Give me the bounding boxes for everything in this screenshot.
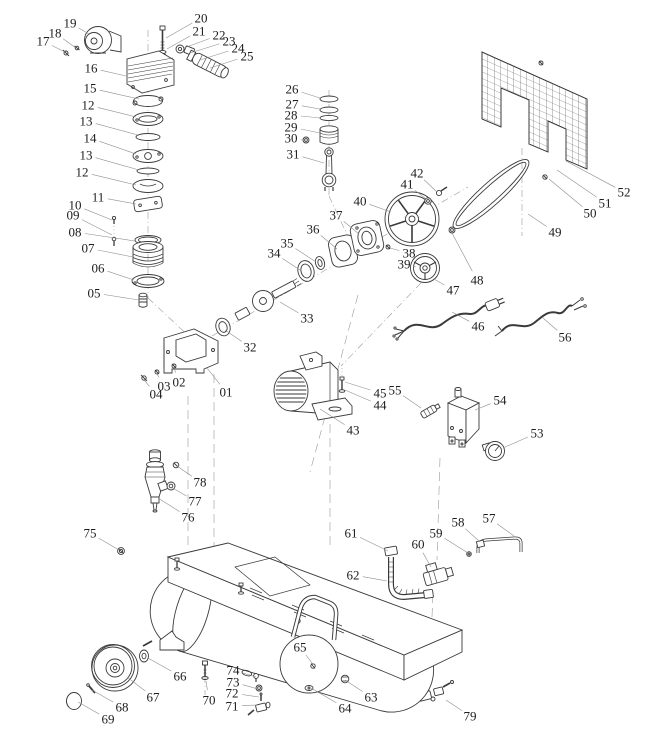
regulator-port-77 — [158, 481, 175, 491]
leader-line-73 — [243, 685, 258, 689]
connecting-rod-31 — [322, 148, 336, 191]
part-label-53: 53 — [531, 426, 544, 441]
part-label-02: 02 — [173, 375, 186, 390]
drain-washer-73 — [256, 685, 262, 691]
crankshaft-33 — [235, 279, 301, 321]
part-label-77: 77 — [189, 494, 203, 509]
leader-line-03 — [157, 374, 159, 377]
part-label-67: 67 — [147, 690, 161, 705]
leader-line-09 — [82, 220, 112, 235]
cylinder-head-16 — [127, 51, 174, 93]
filter-screws-17-18 — [63, 46, 80, 56]
mount-nut-75 — [118, 548, 125, 555]
leader-line-13 — [96, 158, 139, 170]
leader-line-01 — [207, 368, 220, 384]
valve-plate-14 — [133, 150, 163, 163]
part-label-35: 35 — [281, 236, 294, 251]
leader-line-59 — [445, 538, 469, 553]
part-label-07: 07 — [82, 241, 96, 256]
hose-nut-61 — [384, 546, 397, 556]
leader-line-14 — [99, 141, 136, 154]
leader-line-17 — [52, 46, 65, 53]
tank-end-cap-65 — [280, 635, 338, 693]
leader-line-26 — [302, 92, 321, 98]
valve-screws-09-10 — [112, 216, 116, 246]
cylinder-gasket-06 — [132, 275, 164, 288]
part-label-79: 79 — [464, 709, 477, 724]
part-label-04: 04 — [150, 387, 164, 402]
diagram-canvas: 0102030405060708091011121314131215161718… — [0, 0, 649, 755]
part-label-74: 74 — [227, 663, 241, 678]
part-label-62: 62 — [347, 568, 360, 583]
leader-line-27 — [302, 106, 320, 109]
valve-plate-12-lower — [133, 180, 163, 193]
drain-pin-72 — [260, 693, 262, 701]
leader-line-57 — [497, 524, 514, 536]
leader-line-75 — [99, 538, 119, 550]
leader-line-72 — [242, 695, 259, 698]
part-label-12: 12 — [76, 165, 89, 180]
leader-line-07 — [98, 250, 133, 257]
part-label-36: 36 — [307, 222, 321, 237]
part-label-16: 16 — [85, 61, 99, 76]
plug-05 — [139, 293, 147, 307]
part-label-33: 33 — [301, 311, 314, 326]
part-label-13: 13 — [80, 114, 93, 129]
part-label-40: 40 — [354, 194, 367, 209]
part-label-45: 45 — [374, 386, 387, 401]
leader-line-33 — [280, 302, 298, 313]
plug-fitting-55 — [420, 403, 441, 419]
part-label-37: 37 — [330, 208, 344, 223]
part-label-57: 57 — [483, 511, 497, 526]
leader-line-29 — [301, 129, 320, 133]
flywheel-bolt-42 — [436, 187, 447, 196]
leader-line-15 — [100, 90, 139, 99]
leader-line-12 — [98, 107, 136, 117]
leader-line-67 — [127, 677, 145, 691]
exploded-parts-diagram: 0102030405060708091011121314131215161718… — [0, 0, 649, 755]
gasket-13-lower — [137, 168, 159, 174]
part-label-52: 52 — [618, 185, 631, 200]
leader-line-16 — [101, 70, 126, 76]
part-label-31: 31 — [287, 147, 300, 162]
part-label-01: 01 — [220, 385, 233, 400]
part-label-60: 60 — [412, 537, 425, 552]
part-label-76: 76 — [182, 510, 196, 525]
motor-43 — [272, 352, 352, 420]
leader-line-34 — [282, 259, 300, 271]
part-label-12: 12 — [82, 98, 95, 113]
part-label-18: 18 — [49, 26, 62, 41]
leader-line-06 — [108, 271, 135, 280]
leader-line-42 — [424, 180, 437, 192]
part-label-61: 61 — [345, 526, 358, 541]
part-label-64: 64 — [339, 701, 353, 716]
leader-line-77 — [171, 487, 186, 496]
part-label-50: 50 — [584, 206, 597, 221]
power-cable-46 — [393, 296, 506, 340]
leader-line-45 — [345, 382, 371, 390]
leader-line-10 — [84, 209, 112, 220]
part-label-66: 66 — [174, 669, 188, 684]
power-cable-56 — [495, 298, 586, 336]
leader-line-55 — [403, 396, 421, 408]
part-label-25: 25 — [241, 49, 254, 64]
leader-line-32 — [225, 330, 242, 341]
part-label-30: 30 — [285, 131, 298, 146]
pipe-nut-58 — [476, 540, 484, 548]
part-label-46: 46 — [472, 319, 486, 334]
axle-washer-66 — [140, 650, 149, 662]
part-label-08: 08 — [69, 225, 82, 240]
part-label-19: 19 — [64, 16, 77, 31]
leader-line-58 — [465, 529, 480, 542]
leader-line-68 — [92, 690, 113, 702]
leader-line-70 — [206, 681, 207, 690]
muffler-24-25 — [186, 49, 230, 79]
leader-line-62 — [363, 577, 387, 581]
leader-line-11 — [108, 199, 136, 204]
part-label-32: 32 — [244, 340, 257, 355]
leader-line-22 — [184, 39, 210, 49]
pressure-switch-54 — [448, 388, 479, 448]
leader-line-76 — [158, 498, 180, 512]
piston-rings-26-28 — [320, 96, 338, 121]
part-label-15: 15 — [84, 81, 97, 96]
leader-line-12 — [92, 174, 136, 185]
part-label-11: 11 — [92, 190, 105, 205]
drain-bolt-74 — [254, 674, 259, 682]
leader-line-53 — [503, 437, 528, 448]
part-label-05: 05 — [88, 286, 101, 301]
filter-regulator-76 — [145, 450, 165, 512]
part-label-14: 14 — [84, 131, 98, 146]
gasket-13-upper — [136, 134, 160, 141]
piston-29 — [320, 126, 338, 144]
leader-line-52 — [566, 161, 615, 187]
leader-line-35 — [295, 249, 316, 263]
pulley-key-bolt — [386, 245, 390, 249]
part-label-71: 71 — [226, 699, 239, 714]
oil-seal-32 — [214, 316, 233, 337]
wheel-67 — [92, 645, 139, 692]
leader-line-13 — [96, 124, 138, 135]
leader-line-69 — [78, 702, 99, 714]
drain-valve-71 — [248, 702, 270, 715]
part-label-13: 13 — [80, 148, 93, 163]
bearing-cover-37 — [349, 219, 385, 257]
washer-35 — [314, 256, 326, 271]
part-label-51: 51 — [599, 196, 612, 211]
leader-line-48 — [452, 233, 472, 271]
hub-cap-69 — [67, 693, 82, 710]
leader-line-18 — [63, 39, 76, 48]
leader-line-31 — [303, 157, 324, 163]
part-label-68: 68 — [116, 700, 129, 715]
part-label-75: 75 — [84, 526, 97, 541]
part-label-39: 39 — [398, 257, 411, 272]
part-label-10: 10 — [69, 198, 82, 213]
leader-line-49 — [528, 214, 547, 227]
pressure-gauge-53 — [482, 442, 504, 461]
part-label-55: 55 — [389, 383, 402, 398]
part-label-78: 78 — [194, 475, 207, 490]
leader-line-28 — [301, 116, 320, 118]
part-label-63: 63 — [365, 690, 378, 705]
tank-port-64 — [305, 686, 313, 691]
leader-line-05 — [104, 295, 139, 301]
part-label-59: 59 — [430, 526, 443, 541]
part-label-56: 56 — [559, 330, 573, 345]
part-label-65: 65 — [294, 640, 307, 655]
axle-bolt-70 — [202, 661, 208, 680]
valve-plate-12-upper — [133, 113, 163, 126]
part-label-21: 21 — [193, 24, 206, 39]
part-label-48: 48 — [471, 273, 484, 288]
valve-plate-11 — [133, 196, 163, 212]
part-label-26: 26 — [286, 82, 300, 97]
check-valve-60 — [421, 559, 454, 586]
axle-pin-68 — [87, 684, 95, 693]
bearing-34 — [296, 259, 317, 283]
leader-line-23 — [190, 44, 219, 53]
leader-line-56 — [543, 318, 557, 331]
part-label-42: 42 — [411, 166, 424, 181]
leader-line-71 — [242, 705, 257, 706]
part-label-70: 70 — [203, 693, 216, 708]
leader-line-66 — [148, 658, 171, 671]
part-label-43: 43 — [347, 423, 360, 438]
leader-line-38 — [390, 248, 399, 251]
part-label-58: 58 — [452, 515, 465, 530]
leader-line-44 — [345, 390, 371, 401]
leader-line-78 — [177, 466, 192, 476]
leader-line-20 — [166, 23, 192, 38]
part-label-34: 34 — [268, 246, 282, 261]
leader-line-79 — [446, 700, 462, 711]
leader-line-47 — [434, 279, 444, 285]
part-label-49: 49 — [549, 225, 562, 240]
leader-line-61 — [360, 537, 388, 551]
part-label-06: 06 — [92, 261, 106, 276]
part-label-54: 54 — [494, 393, 508, 408]
leader-line-50 — [549, 179, 582, 207]
motor-bolt-44-45 — [339, 377, 345, 392]
head-gasket-15 — [133, 96, 163, 107]
belt-guard-50-52 — [482, 52, 587, 169]
part-label-47: 47 — [447, 283, 461, 298]
part-label-69: 69 — [102, 712, 115, 727]
air-filter-19 — [85, 27, 122, 54]
